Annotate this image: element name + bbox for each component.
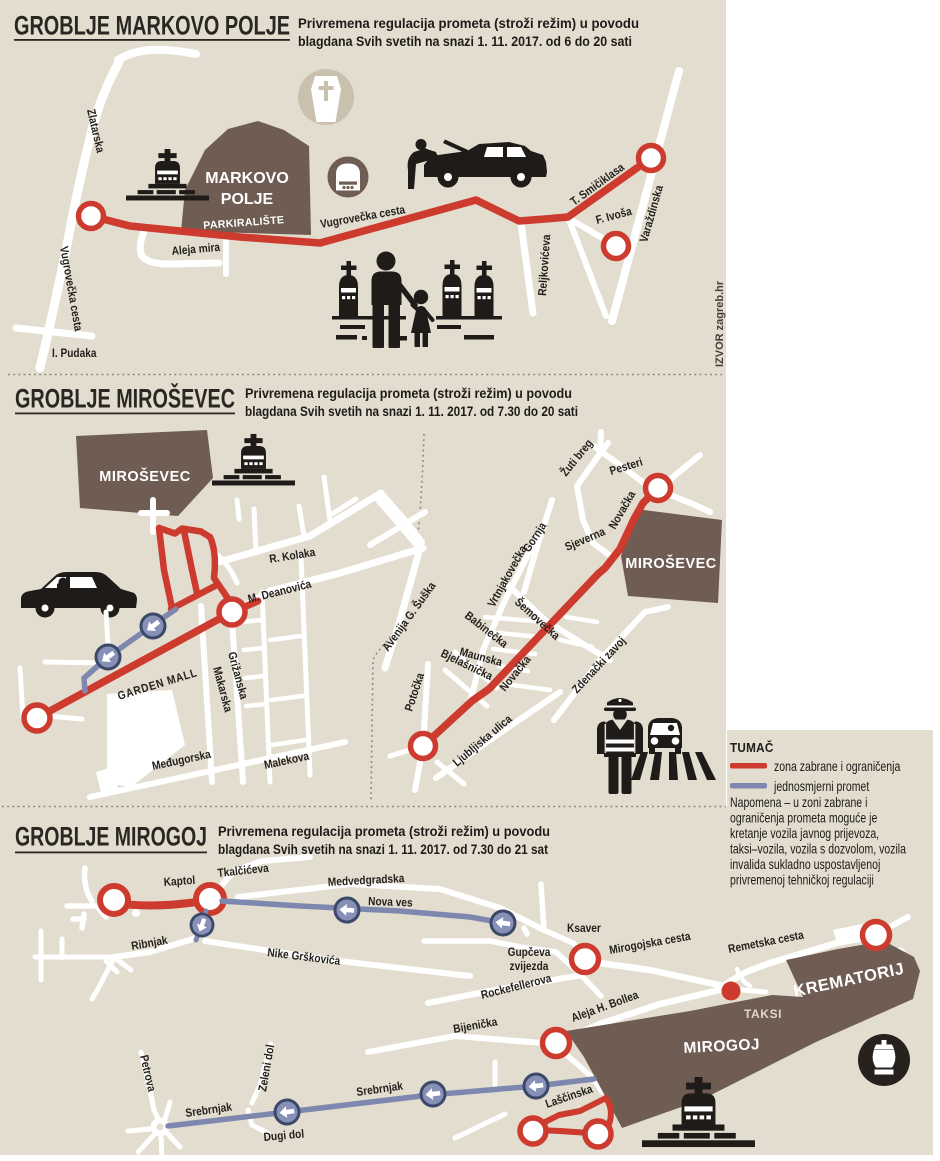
svg-text:TUMAČ: TUMAČ: [730, 739, 774, 755]
svg-text:ograničenja prometa moguće je: ograničenja prometa moguće je: [730, 810, 878, 826]
svg-text:kretanje vozila javnog prijevo: kretanje vozila javnog prijevoza,: [730, 826, 879, 842]
svg-text:blagdana Svih svetih na snazi: blagdana Svih svetih na snazi 1. 11. 201…: [298, 34, 632, 50]
svg-text:Ksaver: Ksaver: [567, 922, 602, 935]
svg-text:Privremena regulacija prometa: Privremena regulacija prometa (stroži re…: [298, 16, 639, 32]
svg-text:Privremena regulacija prometa: Privremena regulacija prometa (stroži re…: [245, 386, 572, 402]
svg-text:taksi–vozila, vozila s dozvolo: taksi–vozila, vozila s dozvolom, vozila: [730, 841, 906, 857]
svg-text:privremenoj tehničkoj regulaci: privremenoj tehničkoj regulaciji: [730, 872, 874, 888]
svg-text:Privremena regulacija prometa: Privremena regulacija prometa (stroži re…: [218, 824, 550, 840]
svg-text:Gupčeva: Gupčeva: [508, 946, 552, 959]
svg-text:Napomena – u zoni zabrane i: Napomena – u zoni zabrane i: [730, 795, 867, 811]
svg-text:MIROŠEVEC: MIROŠEVEC: [625, 554, 717, 572]
svg-text:invalida sukladno uspostavljen: invalida sukladno uspostavljenoj: [730, 857, 880, 873]
svg-text:zona zabrane i ograničenja: zona zabrane i ograničenja: [774, 759, 901, 775]
svg-text:GROBLJE MIROGOJ: GROBLJE MIROGOJ: [15, 822, 207, 852]
svg-text:GROBLJE MIROŠEVEC: GROBLJE MIROŠEVEC: [15, 384, 235, 414]
svg-text:zvijezda: zvijezda: [510, 960, 550, 973]
svg-text:MARKOVO: MARKOVO: [205, 170, 289, 187]
svg-text:Nova ves: Nova ves: [368, 895, 413, 909]
svg-text:Kaptol: Kaptol: [163, 874, 195, 889]
svg-text:blagdana Svih svetih na snazi: blagdana Svih svetih na snazi 1. 11. 201…: [245, 404, 578, 420]
svg-text:blagdana Svih svetih na snazi: blagdana Svih svetih na snazi 1. 11. 201…: [218, 842, 548, 858]
svg-text:I. Pudaka: I. Pudaka: [52, 347, 97, 360]
svg-text:jednosmjerni promet: jednosmjerni promet: [773, 779, 870, 795]
svg-text:GROBLJE MARKOVO POLJE: GROBLJE MARKOVO POLJE: [14, 11, 290, 41]
svg-text:POLJE: POLJE: [221, 191, 274, 208]
svg-text:MIROŠEVEC: MIROŠEVEC: [99, 467, 191, 485]
svg-text:IZVOR zagreb.hr: IZVOR zagreb.hr: [714, 280, 726, 367]
svg-text:TAKSI: TAKSI: [744, 1007, 782, 1021]
